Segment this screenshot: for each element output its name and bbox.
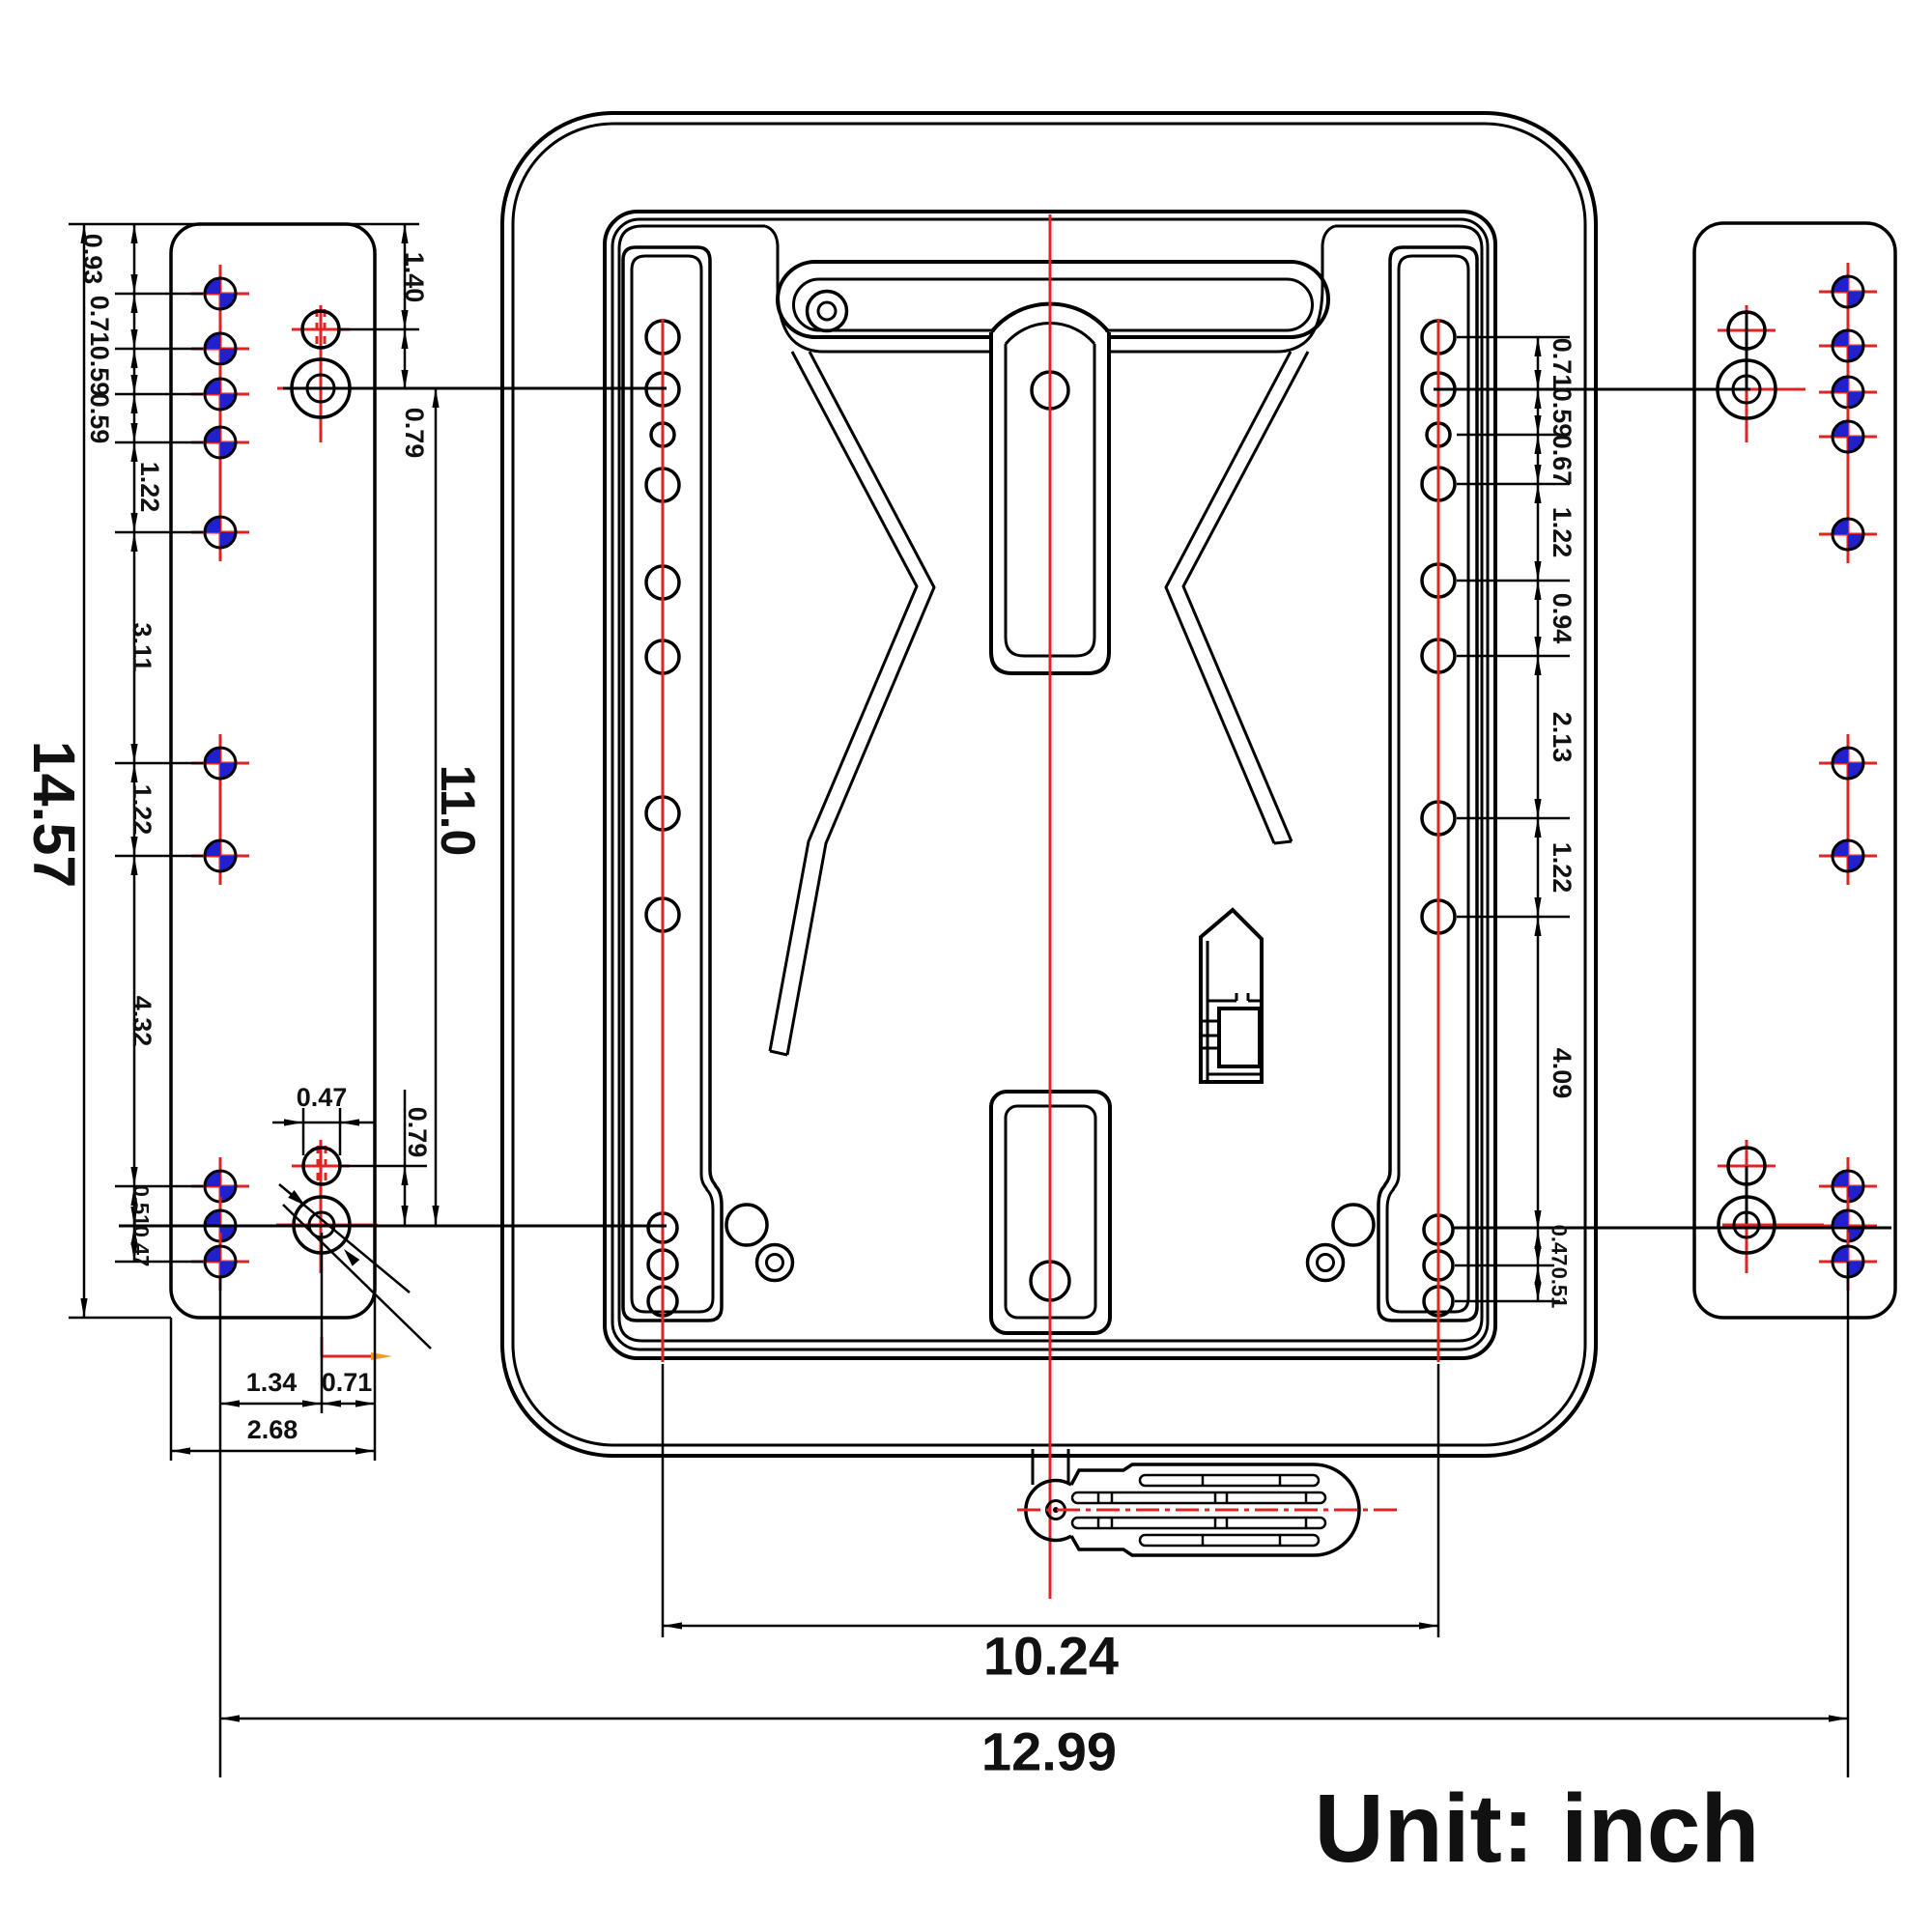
svg-text:1.22: 1.22 [128,784,156,836]
svg-text:0.71: 0.71 [322,1368,373,1397]
svg-text:1.22: 1.22 [135,462,164,513]
svg-text:14.57: 14.57 [21,741,87,889]
svg-text:4.09: 4.09 [1548,1048,1577,1099]
svg-text:Unit: inch: Unit: inch [1314,1775,1759,1883]
svg-text:1.40: 1.40 [400,252,429,303]
svg-text:1.22: 1.22 [1548,507,1577,558]
svg-text:0.59: 0.59 [85,346,114,397]
svg-text:0.94: 0.94 [1548,593,1577,644]
svg-text:0.51: 0.51 [1548,1267,1572,1309]
svg-text:0.51: 0.51 [129,1185,154,1227]
svg-text:0.79: 0.79 [400,408,429,459]
svg-text:0.71: 0.71 [85,296,114,347]
svg-text:0.59: 0.59 [85,393,114,444]
svg-text:10.24: 10.24 [983,1626,1119,1687]
svg-text:2.68: 2.68 [247,1415,298,1444]
svg-text:0.47: 0.47 [1548,1225,1572,1266]
svg-text:2.13: 2.13 [1548,712,1577,763]
svg-text:1.22: 1.22 [1548,842,1577,894]
svg-text:0.71: 0.71 [1548,338,1577,389]
svg-text:3.11: 3.11 [128,622,156,671]
svg-text:4.32: 4.32 [128,996,156,1047]
svg-text:11.0: 11.0 [431,765,485,857]
svg-text:0.59: 0.59 [1548,387,1577,439]
svg-text:0.67: 0.67 [1548,435,1577,486]
svg-text:0.47: 0.47 [129,1226,154,1267]
svg-text:0.47: 0.47 [297,1083,348,1112]
svg-text:0.79: 0.79 [403,1107,432,1158]
svg-text:1.34: 1.34 [246,1368,298,1397]
svg-text:0.93: 0.93 [78,234,107,285]
svg-text:12.99: 12.99 [981,1721,1117,1782]
